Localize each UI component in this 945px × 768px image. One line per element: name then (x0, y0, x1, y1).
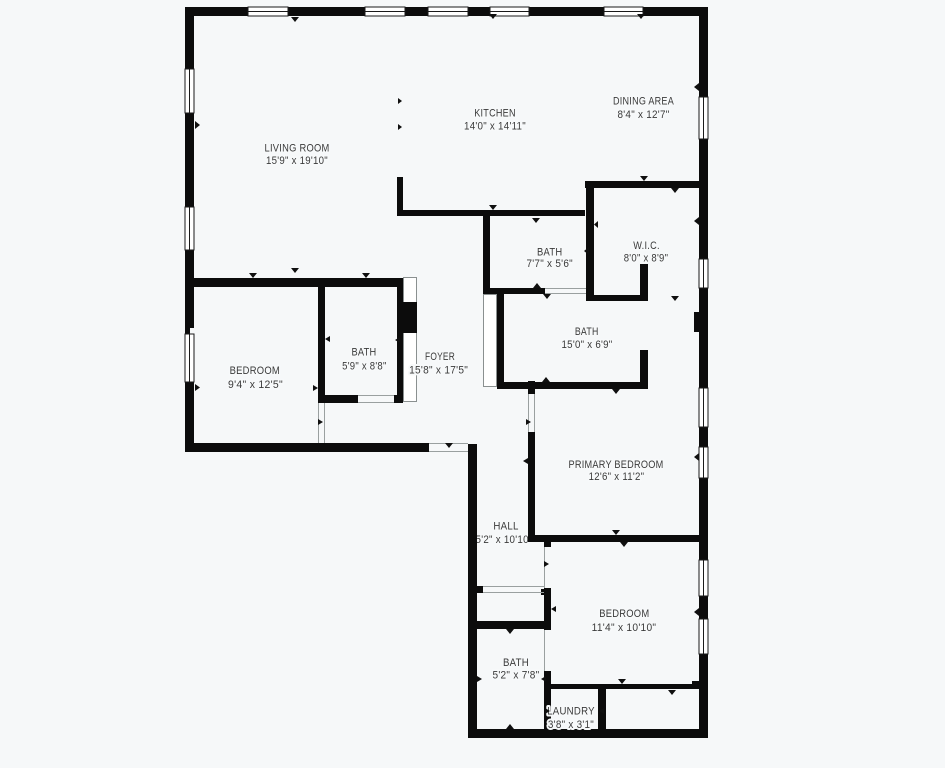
svg-text:LIVING ROOM: LIVING ROOM (265, 143, 330, 155)
svg-text:KITCHEN: KITCHEN (474, 108, 516, 120)
svg-text:DINING AREA: DINING AREA (613, 96, 674, 108)
svg-text:5'9" x 8'8": 5'9" x 8'8" (342, 361, 387, 373)
svg-text:3'8" x 3'1": 3'8" x 3'1" (548, 719, 594, 731)
svg-text:W.I.C.: W.I.C. (633, 240, 660, 252)
svg-text:11'4" x 10'10": 11'4" x 10'10" (592, 622, 657, 634)
svg-text:9'4" x 12'5": 9'4" x 12'5" (228, 379, 283, 391)
svg-text:HALL: HALL (493, 521, 518, 533)
svg-text:BEDROOM: BEDROOM (230, 365, 280, 377)
svg-text:PRIMARY BEDROOM: PRIMARY BEDROOM (569, 459, 664, 471)
svg-text:BATH: BATH (575, 326, 599, 338)
svg-text:15'9" x 19'10": 15'9" x 19'10" (266, 155, 328, 167)
svg-text:8'0" x 8'9": 8'0" x 8'9" (624, 253, 669, 265)
svg-text:12'6" x 11'2": 12'6" x 11'2" (589, 471, 645, 483)
svg-text:8'4" x 12'7": 8'4" x 12'7" (618, 109, 670, 121)
svg-text:BATH: BATH (503, 657, 529, 669)
svg-text:15'8" x 17'5": 15'8" x 17'5" (409, 365, 468, 377)
svg-text:5'2" x 7'8": 5'2" x 7'8" (493, 670, 540, 682)
svg-text:BATH: BATH (352, 347, 377, 359)
svg-text:7'7" x 5'6": 7'7" x 5'6" (526, 258, 573, 270)
svg-text:15'0" x 6'9": 15'0" x 6'9" (562, 339, 613, 351)
svg-text:LAUNDRY: LAUNDRY (547, 706, 595, 718)
svg-text:5'2" x 10'10": 5'2" x 10'10" (476, 534, 533, 546)
svg-text:FOYER: FOYER (425, 351, 455, 363)
svg-text:BATH: BATH (537, 246, 562, 258)
svg-text:BEDROOM: BEDROOM (599, 608, 649, 620)
svg-text:14'0" x 14'11": 14'0" x 14'11" (464, 121, 526, 133)
